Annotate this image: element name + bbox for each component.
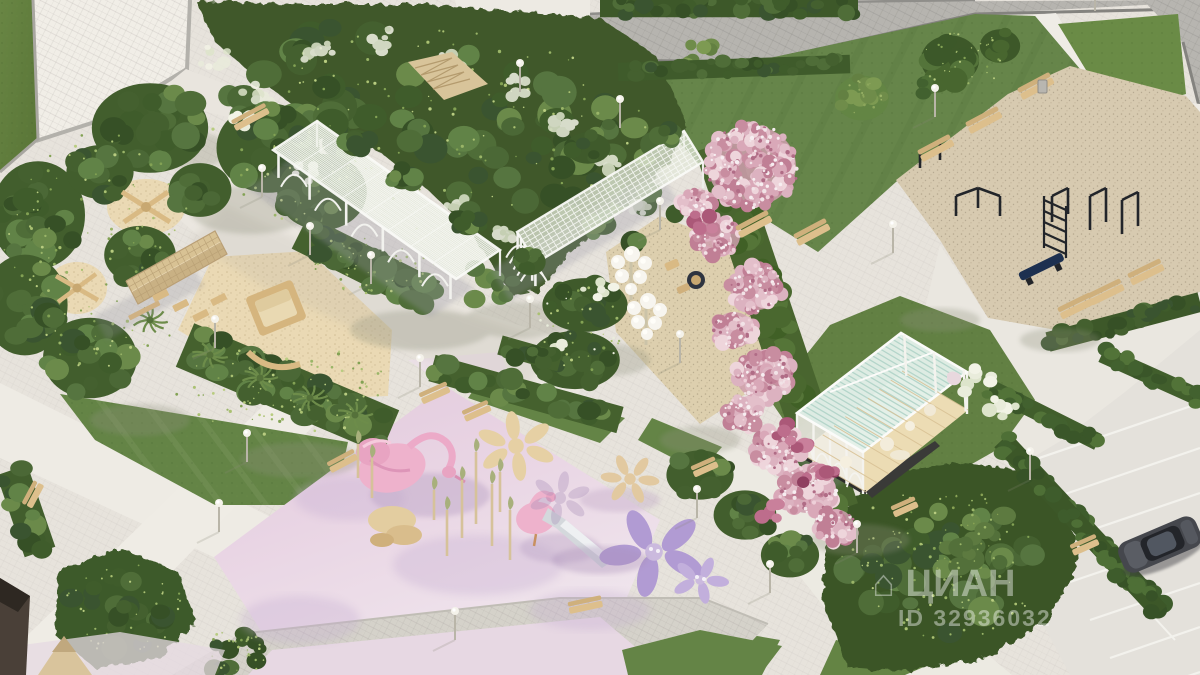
svg-text:⌂ ЦИАН: ⌂ ЦИАН xyxy=(872,563,1015,605)
svg-text:ID 32936032: ID 32936032 xyxy=(898,605,1052,631)
